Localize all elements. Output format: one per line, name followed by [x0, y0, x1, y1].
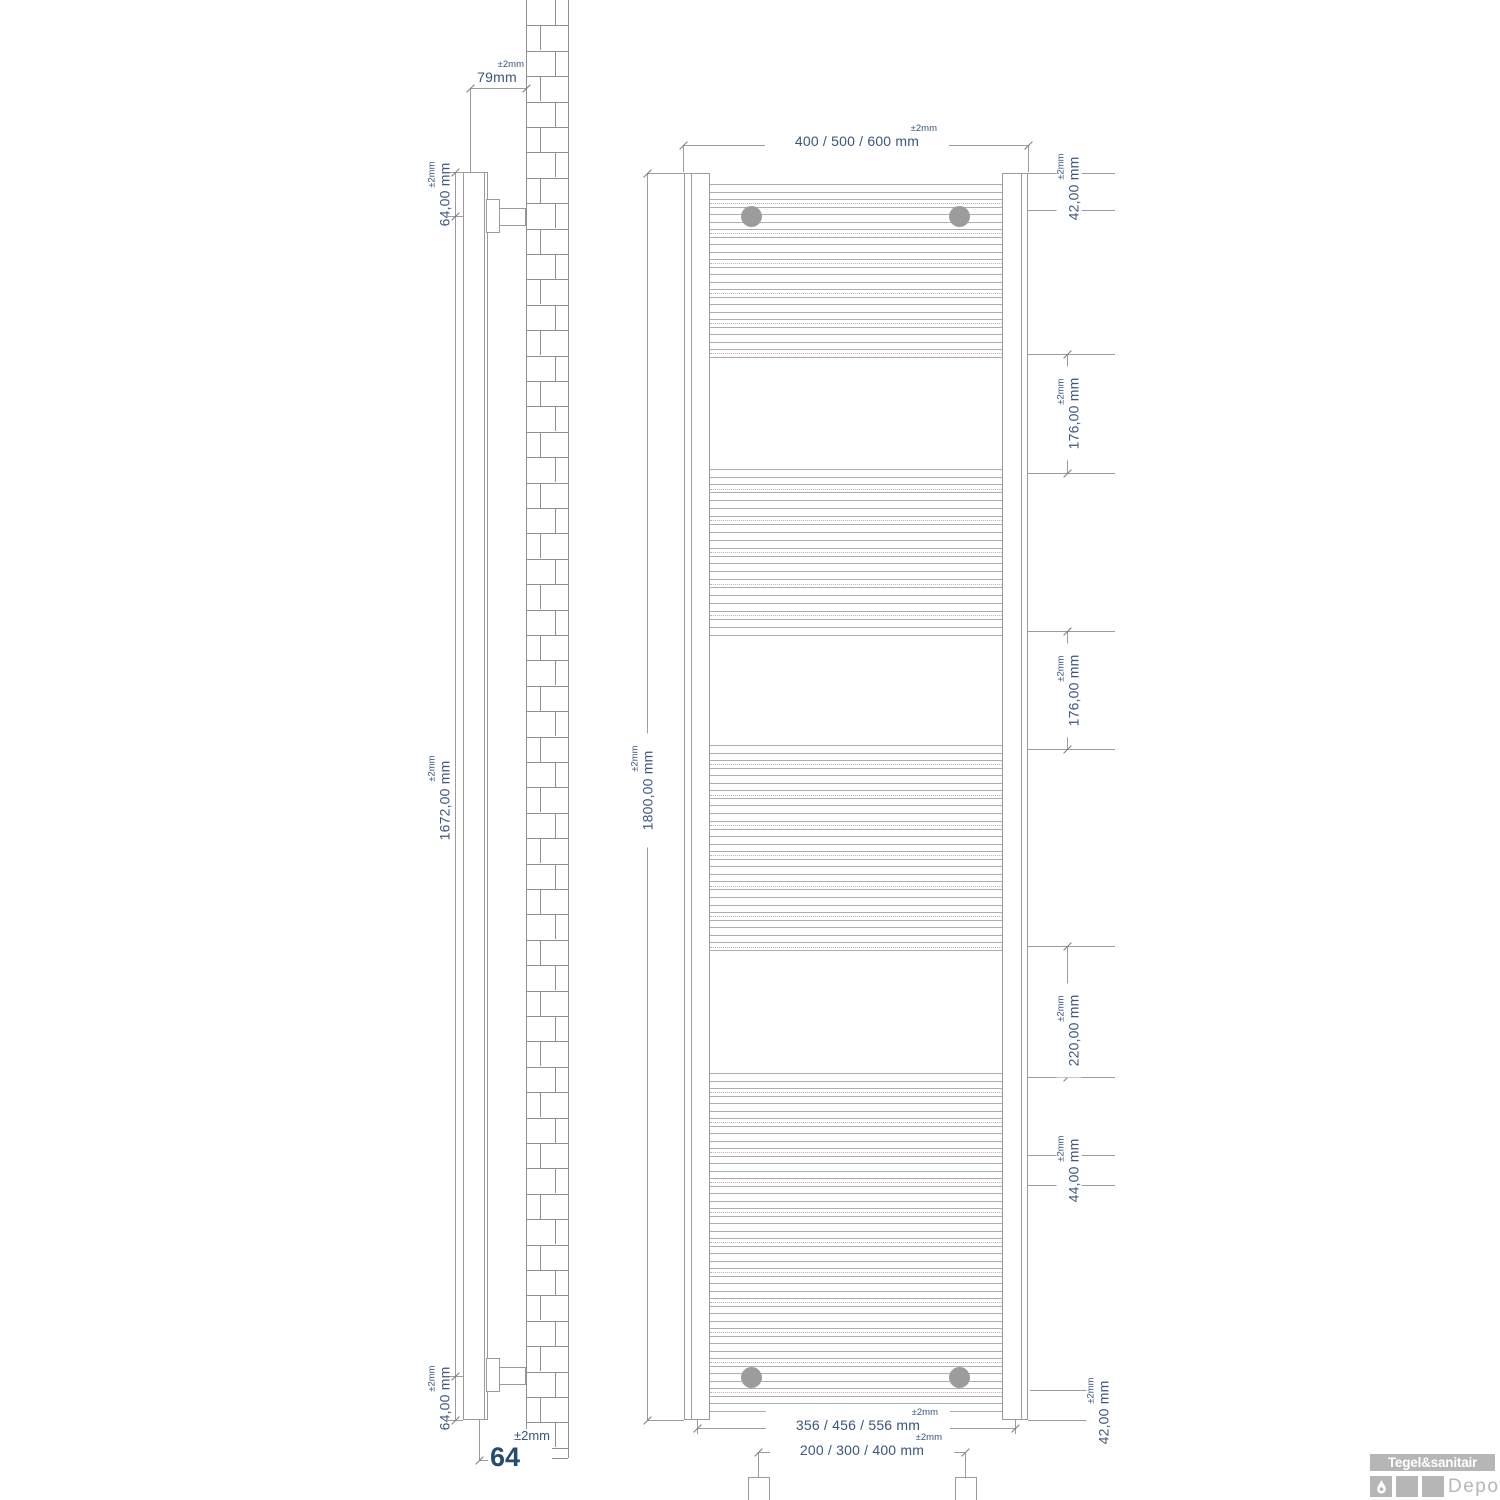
brick-joint [555, 203, 556, 228]
brick-row-line [526, 1194, 568, 1195]
towel-bar [710, 532, 1002, 541]
logo-square-droplet [1370, 1476, 1392, 1497]
towel-bar [710, 244, 1002, 253]
bar-centerline [710, 764, 1002, 765]
brick-row-line [526, 991, 568, 992]
towel-bar [710, 745, 1002, 754]
brick-row-line [526, 51, 568, 52]
bar-centerline [710, 916, 1002, 917]
dim-line-depth [470, 88, 526, 89]
brick-joint [540, 1041, 541, 1066]
brick-row-line [526, 178, 568, 179]
bar-centerline [710, 1182, 1002, 1183]
towel-bar [710, 1163, 1002, 1172]
brick-row-line [526, 660, 568, 661]
brick-row-line [526, 610, 568, 611]
brick-row-line [526, 1168, 568, 1169]
brick-joint [540, 25, 541, 50]
brick-row-line [526, 203, 568, 204]
towel-bar [710, 304, 1002, 313]
dim-gap-2-label: ±2mm 176,00 mm [1057, 643, 1082, 737]
brick-joint [555, 762, 556, 787]
brick-row-line [526, 559, 568, 560]
front-view-right-rail [1002, 173, 1028, 1420]
brick-joint [540, 1295, 541, 1320]
brick-joint [540, 483, 541, 508]
bar-centerline [710, 263, 1002, 264]
brick-joint [540, 533, 541, 558]
brick-joint [540, 76, 541, 101]
bar-centerline [710, 855, 1002, 856]
towel-bar [710, 1103, 1002, 1112]
towel-bar [710, 1193, 1002, 1202]
brick-row-line [526, 127, 568, 128]
brick-row-line [526, 686, 568, 687]
brick-joint [555, 1372, 556, 1397]
brick-joint [540, 1194, 541, 1219]
bar-centerline [710, 1152, 1002, 1153]
bar-centerline [710, 520, 1002, 521]
brick-joint [555, 864, 556, 889]
brick-row-line [526, 1346, 568, 1347]
bar-centerline [710, 293, 1002, 294]
towel-bar [710, 184, 1002, 193]
brick-joint [540, 635, 541, 660]
brick-joint [540, 991, 541, 1016]
brick-joint [540, 127, 541, 152]
towel-bar [710, 274, 1002, 283]
brick-row-line [526, 1422, 568, 1423]
towel-bar [710, 627, 1002, 636]
dim-gap-1-label: ±2mm 176,00 mm [1057, 366, 1082, 460]
front-view-left-rail [684, 173, 710, 1420]
brick-joint [540, 432, 541, 457]
technical-drawing-towel-radiator: ±2mm 79mm ±2mm 64,00 mm ±2mm 1672,00 mm … [0, 0, 1500, 1500]
brick-joint [555, 406, 556, 431]
brick-row-line [526, 305, 568, 306]
bar-centerline [710, 1242, 1002, 1243]
dim-bottom-gap-label: ±2mm 42,00 mm [1087, 1365, 1112, 1459]
brick-joint [555, 1168, 556, 1193]
towel-bar [710, 836, 1002, 845]
brick-joint [555, 356, 556, 381]
front-view-left-rail-inner-line [691, 174, 692, 1419]
brick-joint [555, 660, 556, 685]
brick-row-line [526, 1118, 568, 1119]
brand-banner: Tegel&sanitair [1370, 1454, 1495, 1471]
wall-edge-right [568, 0, 569, 1458]
brick-row-line [526, 406, 568, 407]
brick-row-line [526, 1270, 568, 1271]
brick-row-line [526, 914, 568, 915]
brick-joint [555, 102, 556, 127]
bar-centerline [710, 552, 1002, 553]
bar-centerline [710, 323, 1002, 324]
brick-row-line [526, 254, 568, 255]
brick-joint [555, 610, 556, 635]
towel-bar [710, 500, 1002, 509]
brick-joint [555, 1118, 556, 1143]
pipe-stub-left [748, 1477, 770, 1500]
brand-name: Tegel&sanitair [1388, 1455, 1477, 1470]
brick-row-line [526, 940, 568, 941]
brick-joint [540, 330, 541, 355]
extension-line [1028, 145, 1029, 172]
brick-joint [540, 279, 541, 304]
brick-joint [540, 1143, 541, 1168]
towel-bar [710, 927, 1002, 936]
dim-wall-offset-label: ±2mm 64 [488, 1429, 552, 1471]
dim-bottom-bracket-label: ±2mm 64,00 mm [428, 1355, 453, 1441]
brick-row-line [526, 381, 568, 382]
bottom-bracket-arm [499, 1367, 526, 1385]
brick-row-line [526, 1397, 568, 1398]
bar-centerline [710, 233, 1002, 234]
extension-line [965, 1452, 966, 1477]
brick-joint [540, 1346, 541, 1371]
dim-top-gap-label: ±2mm 42,00 mm [1057, 141, 1082, 235]
mount-circle-top-left [741, 206, 762, 227]
brick-row-line [526, 965, 568, 966]
brick-joint [540, 838, 541, 863]
brick-row-line [526, 1245, 568, 1246]
extension-line [647, 1420, 684, 1421]
bar-centerline [710, 203, 1002, 204]
brick-row-line [526, 102, 568, 103]
brick-row-line [526, 432, 568, 433]
towel-bar [710, 805, 1002, 814]
top-bracket-clamp [486, 199, 500, 233]
brick-row-line [526, 1321, 568, 1322]
brick-joint [540, 1092, 541, 1117]
brick-joint [555, 965, 556, 990]
towel-bar [710, 1343, 1002, 1352]
brick-joint [540, 686, 541, 711]
dim-line-side-stack [455, 172, 456, 1420]
dim-bracket-span-label: ±2mm 1672,00 mm [428, 745, 453, 855]
brick-row-line [526, 864, 568, 865]
bar-centerline [710, 886, 1002, 887]
brick-joint [555, 1219, 556, 1244]
brick-joint [555, 813, 556, 838]
bar-centerline [710, 1362, 1002, 1363]
logo-square-2 [1396, 1476, 1418, 1497]
brick-joint [540, 178, 541, 203]
brick-row-line [526, 1143, 568, 1144]
brick-joint [555, 0, 556, 25]
bar-centerline [710, 947, 1002, 948]
towel-bar [710, 866, 1002, 875]
dim-width-label: ±2mm 400 / 500 / 600 mm [765, 124, 949, 149]
brick-row-line [526, 1016, 568, 1017]
bar-centerline [710, 795, 1002, 796]
dim-inner-width-label: ±2mm 356 / 456 / 556 mm [766, 1408, 950, 1433]
bar-centerline [710, 489, 1002, 490]
brick-joint [540, 229, 541, 254]
bar-centerline [710, 615, 1002, 616]
logo-square-3 [1422, 1476, 1444, 1497]
top-bracket-arm [499, 208, 526, 226]
brick-row-line [526, 1092, 568, 1093]
brick-joint [555, 914, 556, 939]
extension-line [758, 1452, 759, 1477]
dim-top-bracket-label: ±2mm 64,00 mm [428, 151, 453, 237]
brick-row-line [526, 1041, 568, 1042]
bar-centerline [710, 1332, 1002, 1333]
bottom-bracket-clamp [486, 1358, 500, 1392]
droplet-icon [1375, 1479, 1388, 1494]
brick-row-line [526, 762, 568, 763]
brick-joint [540, 381, 541, 406]
brick-joint [540, 889, 541, 914]
side-view-rail-inner-line [484, 173, 485, 1419]
brick-joint [540, 1397, 541, 1422]
brick-joint [555, 1321, 556, 1346]
brick-row-line [526, 889, 568, 890]
towel-bar [710, 334, 1002, 343]
bar-centerline [710, 353, 1002, 354]
brick-row-line [526, 483, 568, 484]
brick-joint [555, 51, 556, 76]
brick-row-line [526, 737, 568, 738]
brick-joint [555, 305, 556, 330]
brick-row-line [526, 1295, 568, 1296]
towel-bar [710, 897, 1002, 906]
dim-pipe-spacing-label: ±2mm 200 / 300 / 400 mm [770, 1433, 954, 1458]
brick-joint [555, 711, 556, 736]
dim-gap-4-label: ±2mm 44,00 mm [1057, 1123, 1082, 1217]
towel-bar [710, 1223, 1002, 1232]
bar-centerline [710, 1212, 1002, 1213]
logo-suffix: Depot [1448, 1476, 1500, 1498]
brick-row-line [526, 711, 568, 712]
mount-circle-top-right [949, 206, 970, 227]
dim-height-label: ±2mm 1800,00 mm [631, 733, 656, 847]
towel-bar [710, 1133, 1002, 1142]
brick-joint [555, 457, 556, 482]
brick-joint [555, 152, 556, 177]
front-view-right-rail-inner-line [1021, 174, 1022, 1419]
bar-centerline [710, 584, 1002, 585]
bar-centerline [710, 1092, 1002, 1093]
brick-joint [555, 1016, 556, 1041]
towel-bar [710, 1073, 1002, 1082]
bar-centerline [710, 1122, 1002, 1123]
brick-joint [540, 940, 541, 965]
brick-joint [555, 508, 556, 533]
brick-row-line [526, 787, 568, 788]
towel-bar [710, 595, 1002, 604]
towel-bar [710, 469, 1002, 478]
towel-bar [710, 775, 1002, 784]
pipe-stub-right [955, 1477, 977, 1500]
towel-bar [710, 1253, 1002, 1262]
brick-row-line [526, 152, 568, 153]
brick-row-line [526, 229, 568, 230]
extension-line [683, 145, 684, 172]
towel-bar [710, 1283, 1002, 1292]
brick-row-line [526, 356, 568, 357]
brick-row-line [526, 1372, 568, 1373]
brick-row-line [526, 25, 568, 26]
bar-centerline [710, 1272, 1002, 1273]
brick-row-line [526, 1219, 568, 1220]
brick-joint [540, 737, 541, 762]
brick-joint [555, 1270, 556, 1295]
brick-row-line [526, 838, 568, 839]
dim-depth-label: ±2mm 79mm [460, 60, 534, 85]
brick-joint [540, 787, 541, 812]
towel-bar [710, 1313, 1002, 1322]
mount-circle-bottom-right [949, 1367, 970, 1388]
bar-centerline [710, 1392, 1002, 1393]
brick-joint [540, 1245, 541, 1270]
bar-centerline [710, 825, 1002, 826]
brick-joint [555, 1067, 556, 1092]
brick-row-line [526, 1067, 568, 1068]
brick-joint [555, 559, 556, 584]
extension-line [479, 1420, 480, 1460]
dim-gap-3-label: ±2mm 220,00 mm [1057, 983, 1082, 1077]
brick-row-line [526, 508, 568, 509]
brick-joint [540, 584, 541, 609]
brick-row-line [526, 635, 568, 636]
brick-row-line [526, 533, 568, 534]
extension-line [647, 173, 684, 174]
brick-row-line [526, 813, 568, 814]
mount-circle-bottom-left [741, 1367, 762, 1388]
brick-row-line [526, 330, 568, 331]
brick-row-line [526, 457, 568, 458]
towel-bar [710, 563, 1002, 572]
brick-row-line [526, 584, 568, 585]
wall-edge-left [526, 0, 527, 1458]
brick-joint [555, 254, 556, 279]
bar-centerline [710, 1302, 1002, 1303]
brick-joint [555, 1422, 556, 1447]
brick-row-line [526, 279, 568, 280]
